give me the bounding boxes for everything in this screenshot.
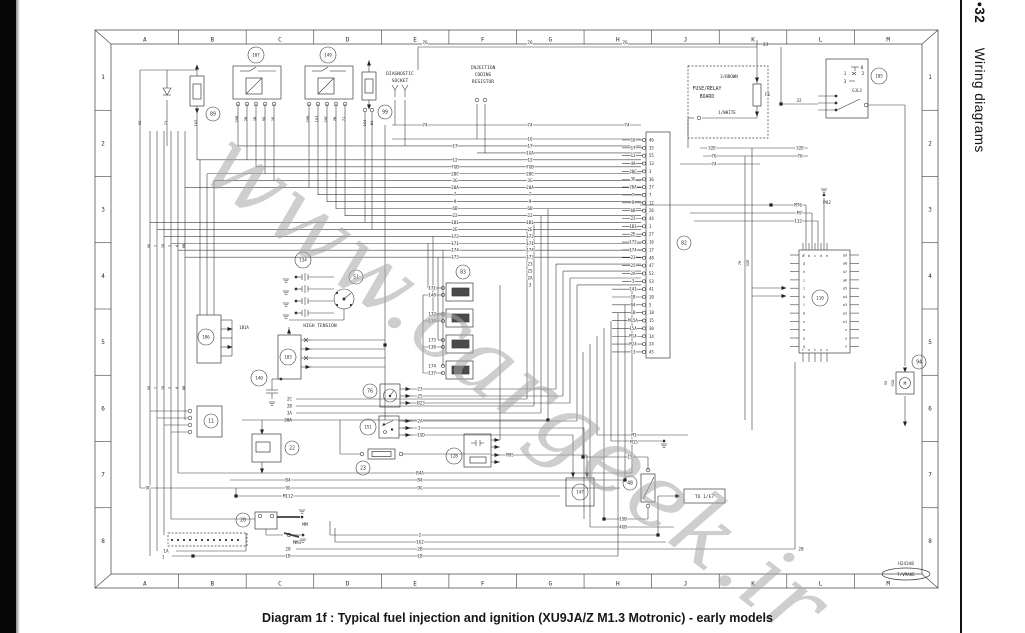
arrow-marker bbox=[306, 365, 311, 369]
wire-label: 71 bbox=[341, 116, 346, 121]
ecu-pin-number: 41 bbox=[649, 287, 654, 292]
wire-label: 20 bbox=[798, 547, 804, 553]
connector bbox=[646, 504, 650, 508]
ecu-pin-number: 45 bbox=[649, 349, 654, 354]
wire-label: 1B bbox=[285, 554, 291, 560]
bus-label: 1B1 bbox=[451, 220, 459, 226]
wire-label: 1G2 bbox=[193, 120, 198, 127]
grid-letter: L bbox=[819, 581, 823, 588]
grid-letter: L bbox=[819, 37, 823, 44]
component-box bbox=[190, 76, 204, 106]
connector bbox=[350, 304, 352, 306]
ecu-pin-number: 18 bbox=[649, 310, 654, 315]
component-box bbox=[372, 452, 391, 457]
arrow-marker bbox=[367, 61, 371, 66]
component-box bbox=[470, 457, 486, 463]
wire-label: 76 bbox=[737, 260, 742, 265]
wire-label: 20B bbox=[305, 115, 310, 123]
wire-label: 74 bbox=[422, 123, 428, 129]
bus-label: 173 bbox=[526, 255, 534, 261]
bus-label: 173 bbox=[451, 255, 459, 261]
ecu-pin-number: 46 bbox=[649, 138, 654, 143]
connector bbox=[835, 95, 837, 97]
grid-letter: K bbox=[751, 37, 755, 44]
grid-number: 5 bbox=[928, 339, 932, 346]
bus-label: 12 bbox=[527, 157, 533, 163]
pin-letter: a8 bbox=[843, 262, 847, 266]
pin-letter: s bbox=[808, 348, 810, 352]
injector-wire: 140 bbox=[428, 293, 436, 299]
wire-label: GJL3 bbox=[852, 88, 862, 93]
ecu-pin-number: 53 bbox=[649, 279, 654, 284]
ecu-wire-label: 23 bbox=[631, 255, 636, 260]
grid-letter: B bbox=[211, 581, 215, 588]
wire-label: 1/WHITE bbox=[718, 110, 736, 115]
connector bbox=[207, 539, 209, 541]
connector bbox=[188, 430, 192, 434]
wire-label: 76 bbox=[711, 154, 717, 160]
ecu-pin-number: 30 bbox=[649, 326, 654, 331]
connector bbox=[697, 116, 701, 120]
ecu-pin-number: 47 bbox=[649, 263, 654, 268]
bus-label: 3G bbox=[527, 178, 533, 184]
grid-letter: K bbox=[751, 581, 755, 588]
component-id-badge: 51 bbox=[353, 275, 359, 281]
wire-label: CODING bbox=[475, 72, 492, 78]
ecu-wire-label: M24 bbox=[629, 342, 637, 347]
component-id-badge: 11 bbox=[208, 419, 214, 425]
ecu-pin-number: 36 bbox=[649, 177, 654, 182]
arrow-marker bbox=[585, 473, 589, 478]
component-id-badge: 105 bbox=[875, 74, 883, 79]
bus-label: 22 bbox=[452, 213, 458, 219]
grid-number: 4 bbox=[101, 273, 105, 280]
wire-segment bbox=[922, 574, 938, 588]
ecu-wire-label: 141 bbox=[629, 287, 637, 292]
grid-letter: C bbox=[278, 37, 282, 44]
ecu-wire-label: 20C bbox=[629, 169, 637, 174]
pin-letter: n bbox=[803, 320, 805, 324]
wire-label: 3A bbox=[287, 411, 293, 417]
grid-letter: G bbox=[548, 37, 552, 44]
wire-label: 32 bbox=[796, 98, 802, 104]
junction-node bbox=[656, 533, 659, 536]
grid-number: 1 bbox=[928, 74, 932, 81]
ecu-pin-number: 35 bbox=[649, 145, 654, 150]
grid-letter: D bbox=[346, 37, 350, 44]
bus-label: 16 bbox=[527, 137, 533, 143]
component-box bbox=[464, 434, 491, 467]
component-box bbox=[111, 44, 922, 574]
component-id-badge: 106 bbox=[202, 335, 210, 340]
diagram-caption: Diagram 1f : Typical fuel injection and … bbox=[95, 611, 940, 625]
pin-letter: g bbox=[803, 262, 805, 266]
connector bbox=[336, 292, 338, 294]
component-id-badge: 140 bbox=[255, 376, 263, 381]
grid-letter: M bbox=[886, 37, 890, 44]
component-id-badge: 23 bbox=[360, 466, 366, 472]
connector bbox=[195, 539, 197, 541]
grid-number: 4 bbox=[928, 273, 932, 280]
bus-label: 3 bbox=[529, 282, 532, 288]
ecu-wire-label: 3G bbox=[631, 177, 636, 182]
bus-label: 20A bbox=[451, 185, 459, 191]
grid-letter: M bbox=[886, 581, 890, 588]
grid-number: 8 bbox=[928, 538, 932, 545]
ecu-pin-number: 52 bbox=[649, 271, 654, 276]
bus-label: 174 bbox=[451, 248, 459, 254]
injector-wire: 173 bbox=[428, 338, 436, 344]
ecu-pin-number: 14 bbox=[649, 334, 654, 339]
ecu-wire-label: 12 bbox=[631, 153, 636, 158]
ecu-wire-label: 15A bbox=[629, 326, 637, 331]
wire-label: 1B bbox=[252, 116, 257, 121]
injector-wire: 139 bbox=[428, 319, 436, 325]
bus-label: 6B bbox=[527, 206, 533, 212]
wire-label: 71 bbox=[163, 120, 168, 125]
arrow-marker bbox=[195, 65, 199, 70]
ecu-pin-number: 12 bbox=[649, 200, 654, 205]
pin-letter: y bbox=[845, 336, 847, 340]
wire-label: 2B bbox=[417, 547, 423, 553]
grid-letter: F bbox=[481, 37, 485, 44]
connector bbox=[384, 431, 387, 434]
wire-label: 76 bbox=[622, 40, 628, 46]
wire-label: 74 bbox=[527, 123, 533, 129]
connector bbox=[177, 539, 179, 541]
grid-letter: E bbox=[413, 37, 417, 44]
wire-segment bbox=[395, 85, 398, 90]
grid-letter: A bbox=[143, 37, 147, 44]
component-id-badge: 82 bbox=[681, 241, 687, 247]
high-tension-label: HIGH TENSION bbox=[303, 323, 336, 329]
ecu-wire-label: 1B bbox=[631, 294, 636, 299]
component-box bbox=[452, 340, 469, 348]
wire-label: 23 bbox=[417, 387, 423, 393]
pin-letter: a6 bbox=[843, 278, 847, 282]
wire-label: 9G bbox=[417, 486, 423, 492]
component-box bbox=[95, 30, 938, 588]
bus-label: 23 bbox=[527, 262, 533, 268]
pin-letter: l bbox=[803, 303, 805, 307]
connector bbox=[336, 304, 338, 306]
wire-label: 13 bbox=[627, 455, 633, 461]
injector-wire: 172 bbox=[428, 312, 436, 318]
bus-label: 20A bbox=[526, 185, 534, 191]
ecu-pin-number: 24 bbox=[649, 342, 654, 347]
wire-label: 7 bbox=[153, 387, 158, 389]
grid-letter: B bbox=[211, 37, 215, 44]
wire-label: SOCKET bbox=[392, 78, 409, 84]
grid-number: 8 bbox=[101, 538, 105, 545]
pin-letter: a4 bbox=[843, 295, 847, 299]
component-box bbox=[255, 512, 277, 529]
wire-label: 9G bbox=[146, 243, 151, 248]
wire-label: 2B bbox=[243, 116, 248, 121]
grid-letter: J bbox=[684, 581, 688, 588]
wire-label: 1A bbox=[163, 549, 169, 555]
bus-label: 2A bbox=[527, 276, 533, 282]
injection-coding-resistor-label: INJECTION bbox=[471, 65, 496, 71]
wire-label: 1 bbox=[162, 555, 165, 561]
wire-label: 20 bbox=[285, 547, 291, 553]
pin-letter: u bbox=[820, 348, 822, 352]
arrow-marker bbox=[406, 394, 411, 398]
bus-label: 2E bbox=[452, 227, 458, 233]
wire-label: 1G4 bbox=[362, 119, 367, 127]
wire-label: 2 bbox=[167, 387, 172, 389]
wire-label: 32E bbox=[745, 259, 750, 267]
arrow-marker bbox=[287, 329, 291, 334]
ecu-pin-number: 13 bbox=[649, 161, 654, 166]
ecu-wire-label: 1B bbox=[631, 310, 636, 315]
component-id-badge: 128 bbox=[450, 454, 458, 459]
wire-segment bbox=[405, 85, 408, 90]
bus-label: 22 bbox=[527, 213, 533, 219]
wire-label: 2B bbox=[287, 404, 293, 410]
bus-label: 20C bbox=[526, 171, 534, 177]
ecu-pin-number: 37 bbox=[649, 185, 654, 190]
connector bbox=[363, 108, 367, 112]
wire-label: B4 bbox=[417, 478, 423, 484]
stamp-code: H24348 bbox=[898, 561, 914, 567]
ecu-wire-label: 22 bbox=[631, 216, 636, 221]
wire-label: 76 bbox=[527, 40, 533, 46]
stamp-brand: T/VMAKE bbox=[897, 572, 915, 577]
ecu-wire-label: 16 bbox=[631, 137, 636, 142]
grid-letter: G bbox=[548, 581, 552, 588]
component-box bbox=[365, 79, 373, 93]
bus-label: 174 bbox=[526, 248, 534, 254]
wire-label: 32E bbox=[708, 146, 716, 152]
ecu-pin-number: 3 bbox=[649, 169, 652, 174]
arrow-marker bbox=[676, 494, 681, 498]
wire-segment bbox=[922, 30, 938, 44]
bus-label: 1GA bbox=[526, 150, 534, 156]
bus-label: 171 bbox=[526, 241, 534, 247]
component-id-badge: 134 bbox=[299, 258, 307, 263]
diode-icon bbox=[163, 88, 171, 95]
connector bbox=[189, 539, 191, 541]
component-id-badge: 76 bbox=[367, 389, 373, 395]
pin-letter: a2 bbox=[843, 312, 847, 316]
ecu-wire-label: B4 bbox=[631, 302, 636, 307]
bus-label: 9 bbox=[529, 199, 532, 205]
bus-label: 3G bbox=[452, 178, 458, 184]
wire-label: 0 bbox=[861, 65, 864, 71]
wire-label: PH2 bbox=[823, 200, 831, 206]
junction-node bbox=[581, 455, 584, 458]
connector bbox=[188, 409, 192, 413]
ecu-pin-number: 26 bbox=[649, 208, 654, 213]
wire-label: 9G bbox=[285, 486, 291, 492]
pin-letter: a3 bbox=[843, 303, 847, 307]
wire-label: 92A bbox=[890, 379, 895, 387]
ecu-wire-label: 2A bbox=[631, 271, 636, 276]
wire-label: 9G bbox=[145, 486, 151, 492]
wire-label: M15 bbox=[630, 440, 638, 446]
pin-letter: b bbox=[808, 254, 810, 258]
connector bbox=[188, 416, 192, 420]
ecu-pin-number: 1 bbox=[649, 224, 652, 229]
ecu-wire-label: 1B1 bbox=[629, 224, 637, 229]
pin-letter: v bbox=[826, 348, 828, 352]
ecu-pin-number: 16 bbox=[649, 240, 654, 245]
component-id-badge: 147 bbox=[576, 490, 584, 495]
connector bbox=[391, 429, 393, 431]
arrow-marker bbox=[755, 78, 759, 83]
pin-letter: j bbox=[803, 287, 805, 291]
pin-letter: m bbox=[803, 312, 805, 316]
pin-letter: r bbox=[802, 348, 804, 352]
pin-letter: i bbox=[803, 278, 805, 282]
component-box bbox=[753, 84, 761, 106]
wire-label: 92 bbox=[883, 381, 888, 386]
pin-letter: t bbox=[814, 348, 816, 352]
arrow-marker bbox=[406, 401, 411, 405]
connector bbox=[302, 534, 304, 536]
connector bbox=[280, 378, 282, 380]
component-box bbox=[193, 84, 201, 99]
wire-segment bbox=[837, 99, 860, 110]
wire-label: 25 bbox=[417, 394, 423, 400]
wire-label: 9G bbox=[137, 120, 142, 125]
ecu-wire-label: 172 bbox=[629, 239, 637, 244]
bus-label: 172 bbox=[451, 234, 459, 240]
to-1e7-ref: TO 1/E7 bbox=[695, 494, 715, 500]
connector bbox=[823, 194, 825, 196]
wire-label: 9G bbox=[146, 385, 151, 390]
ecu-pin-number: 15 bbox=[649, 318, 654, 323]
ecu-pin-number: 44 bbox=[649, 216, 654, 221]
pin-letter: h bbox=[803, 270, 805, 274]
wire-label: 2 bbox=[167, 245, 172, 247]
arrow-marker bbox=[495, 460, 500, 464]
grid-number: 7 bbox=[928, 472, 932, 479]
wire-label: B4 bbox=[369, 120, 374, 125]
wire-label: 2A bbox=[417, 419, 423, 425]
connector bbox=[270, 514, 274, 518]
arrow-marker bbox=[782, 294, 787, 298]
wire-segment bbox=[344, 293, 351, 299]
grid-number: 1 bbox=[101, 74, 105, 81]
wire-label: M112 bbox=[283, 494, 294, 500]
grid-number: 2 bbox=[928, 140, 932, 147]
grid-letter: J bbox=[684, 37, 688, 44]
wire-label: 20C bbox=[323, 116, 328, 123]
arrow-marker bbox=[495, 438, 500, 442]
connector bbox=[188, 423, 192, 427]
wire-segment bbox=[95, 574, 111, 588]
wire-label: 1SD bbox=[417, 433, 425, 439]
component-box bbox=[452, 314, 469, 322]
ecu-wire-label: 20A bbox=[629, 185, 637, 190]
grid-number: 6 bbox=[928, 405, 932, 412]
wire-label: 1G bbox=[270, 116, 275, 121]
bus-label: 17 bbox=[527, 143, 533, 149]
connector bbox=[483, 98, 487, 102]
arrow-marker bbox=[571, 473, 575, 478]
ecu-wire-label: 4A bbox=[631, 161, 636, 166]
junction-node bbox=[383, 343, 386, 346]
grid-number: 7 bbox=[101, 472, 105, 479]
component-id-badge: 110 bbox=[816, 296, 824, 301]
connector bbox=[237, 539, 239, 541]
wire-label: 8B bbox=[181, 385, 186, 390]
bus-label: 12 bbox=[452, 157, 458, 163]
ecu-pin-number: 10 bbox=[649, 295, 654, 300]
connector bbox=[389, 395, 391, 397]
connector bbox=[201, 539, 203, 541]
ecu-wire-label: 174 bbox=[629, 247, 637, 252]
wire-label: 9G bbox=[261, 116, 266, 121]
junction-node bbox=[769, 203, 772, 206]
junction-node bbox=[602, 517, 605, 520]
bus-label: 172 bbox=[526, 234, 534, 240]
bus-label: 9 bbox=[454, 199, 457, 205]
wire-segment bbox=[392, 85, 395, 90]
ecu-pin-number: 27 bbox=[649, 232, 654, 237]
connector bbox=[231, 539, 233, 541]
ecu-wire-label: 17 bbox=[631, 145, 636, 150]
component-box bbox=[452, 366, 469, 374]
wire-label: M bbox=[904, 381, 907, 387]
grid-number: 3 bbox=[101, 207, 105, 214]
component-id-badge: 107 bbox=[252, 53, 260, 58]
wiring-diagram-canvas: AABBCCDDEEFFGGHHJJKKLLMM1122334455667788… bbox=[0, 0, 1025, 633]
ecu-pin-number: 48 bbox=[649, 255, 654, 260]
wire-label: 74 bbox=[711, 162, 717, 168]
wire-segment bbox=[95, 30, 111, 44]
connector bbox=[171, 539, 173, 541]
pin-letter: a5 bbox=[843, 287, 847, 291]
component-id-badge: 103 bbox=[284, 355, 292, 360]
wire-label: M7 bbox=[797, 211, 803, 217]
bus-label: 2E bbox=[527, 227, 533, 233]
wire-label: B23 bbox=[417, 401, 425, 407]
connector bbox=[225, 539, 227, 541]
bus-label: 7GB bbox=[451, 164, 459, 170]
wire-label: 2J bbox=[763, 42, 768, 48]
component-id-badge: 99 bbox=[382, 110, 388, 116]
component-box bbox=[641, 474, 655, 502]
connector bbox=[663, 440, 665, 442]
wire-label: 2B bbox=[332, 116, 337, 121]
ecu-wire-label: M15A bbox=[628, 318, 638, 323]
grid-number: 6 bbox=[101, 405, 105, 412]
connector bbox=[258, 514, 262, 518]
grid-letter: H bbox=[616, 37, 620, 44]
bus-label: 171 bbox=[451, 241, 459, 247]
wire-label: 1SB bbox=[619, 517, 627, 523]
injector-wire: 137 bbox=[428, 371, 436, 377]
pin-letter: c bbox=[814, 254, 816, 258]
arrow-marker bbox=[495, 453, 500, 457]
wire-label: 3 bbox=[844, 79, 847, 85]
wire-label: 8B bbox=[181, 243, 186, 248]
bus-label: 25 bbox=[527, 269, 533, 275]
arrow-marker bbox=[903, 422, 907, 427]
component-id-badge: 83 bbox=[460, 270, 466, 276]
fuse-relay-board-label: FUSE/RELAY bbox=[693, 86, 722, 92]
wire-label: 20B bbox=[234, 115, 239, 123]
junction-node bbox=[779, 102, 782, 105]
component-id-badge: 151 bbox=[364, 425, 372, 430]
ecu-pin-number: 55 bbox=[649, 153, 654, 158]
wire-label: 3/BROWN bbox=[720, 74, 738, 79]
wire-label: MM bbox=[302, 522, 308, 528]
component-box bbox=[379, 416, 399, 438]
